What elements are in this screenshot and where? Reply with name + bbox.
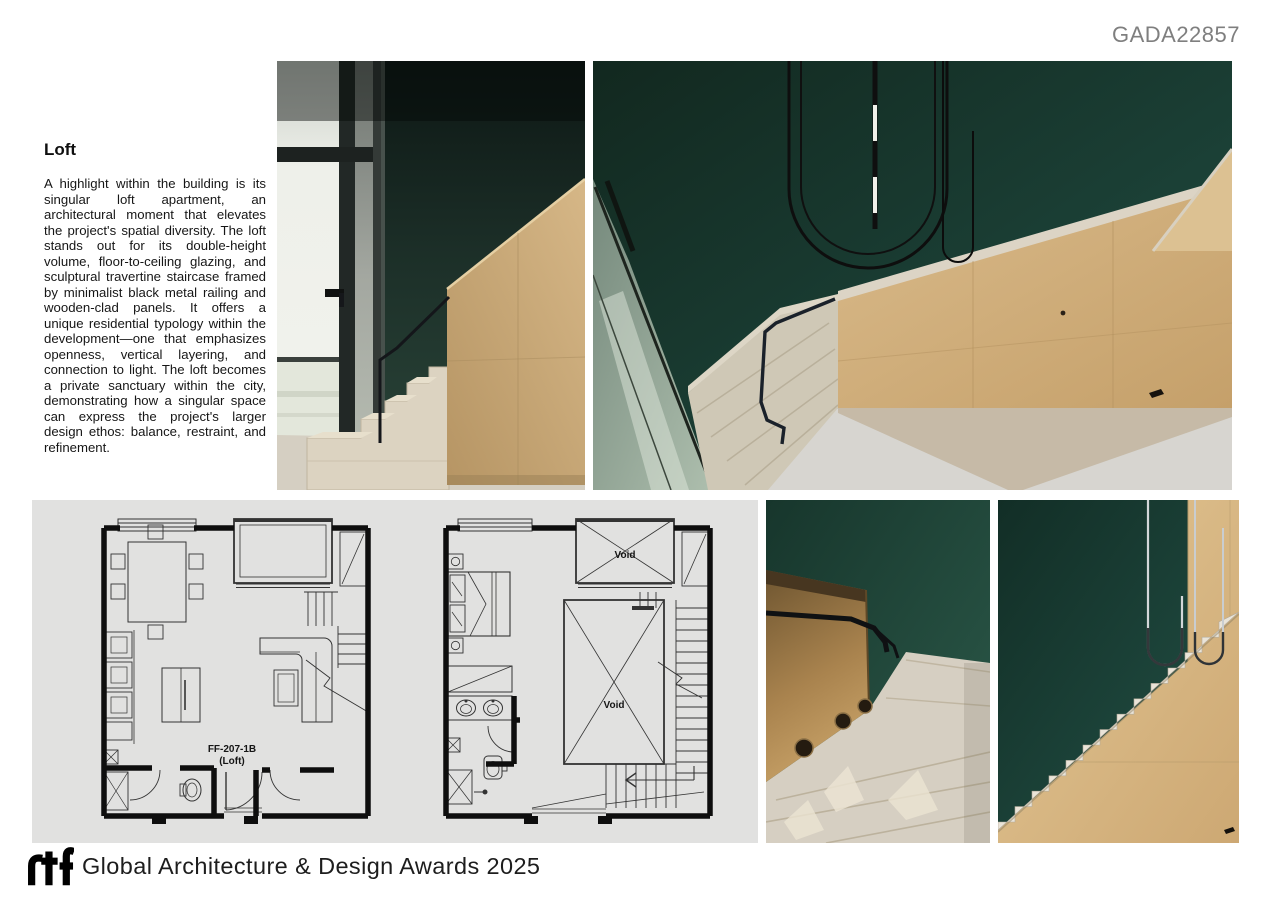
void-label-upper: Void (615, 550, 636, 561)
toilet (180, 779, 201, 801)
photo-stair-diagonal-pendants (998, 500, 1239, 843)
article: Loft A highlight within the building is … (44, 140, 266, 455)
door-arc (130, 770, 160, 800)
kitchen-counter (106, 630, 134, 744)
toilet (484, 756, 507, 779)
ceiling-shadow (277, 61, 585, 121)
photo2-illustration (593, 61, 1232, 490)
sofa (260, 638, 332, 722)
keyhole (1061, 311, 1066, 316)
award-title: Global Architecture & Design Awards 2025 (82, 853, 540, 880)
plan2-walls (446, 528, 710, 816)
void-main-box (564, 600, 664, 764)
plan1-code: FF-207-1B (208, 744, 256, 755)
article-body: A highlight within the building is its s… (44, 176, 266, 455)
rtf-logo (22, 844, 74, 888)
dining-table (111, 525, 203, 639)
step-light (795, 739, 813, 757)
step-light (835, 713, 851, 729)
nightstand (448, 554, 463, 569)
floorplan-lower-level: FF-207-1B (Loft) (94, 512, 378, 832)
coffee-table (274, 670, 298, 706)
photo-stair-detail-lights (766, 500, 990, 843)
plan2-fixtures (446, 519, 710, 813)
photo1-illustration (277, 61, 585, 490)
page-title: Loft (44, 140, 266, 160)
step-light (858, 699, 872, 713)
photo-loft-staircase-window (277, 61, 585, 490)
footer: rtf Global Architecture & Design Awards … (22, 843, 540, 889)
double-sink (448, 696, 512, 720)
door-arc (488, 726, 514, 752)
floorplan-upper-level: Void Void (436, 512, 720, 832)
window-mullion (339, 61, 355, 490)
plan1-sub: (Loft) (219, 756, 245, 767)
plan1-walls (104, 528, 368, 816)
photo-stair-overview-pendant (593, 61, 1232, 490)
break-line (306, 660, 368, 712)
door-arc (270, 770, 300, 800)
nightstand (448, 638, 463, 653)
entry-code: GADA22857 (1112, 22, 1240, 48)
photo3-illustration (766, 500, 990, 843)
void-label-main: Void (604, 700, 625, 711)
floorplan-panel: FF-207-1B (Loft) (32, 500, 758, 843)
photo4-illustration (998, 500, 1239, 843)
logo-letter-r (32, 858, 43, 885)
bed (448, 572, 510, 636)
award-board: GADA22857 Loft A highlight within the bu… (0, 0, 1273, 900)
